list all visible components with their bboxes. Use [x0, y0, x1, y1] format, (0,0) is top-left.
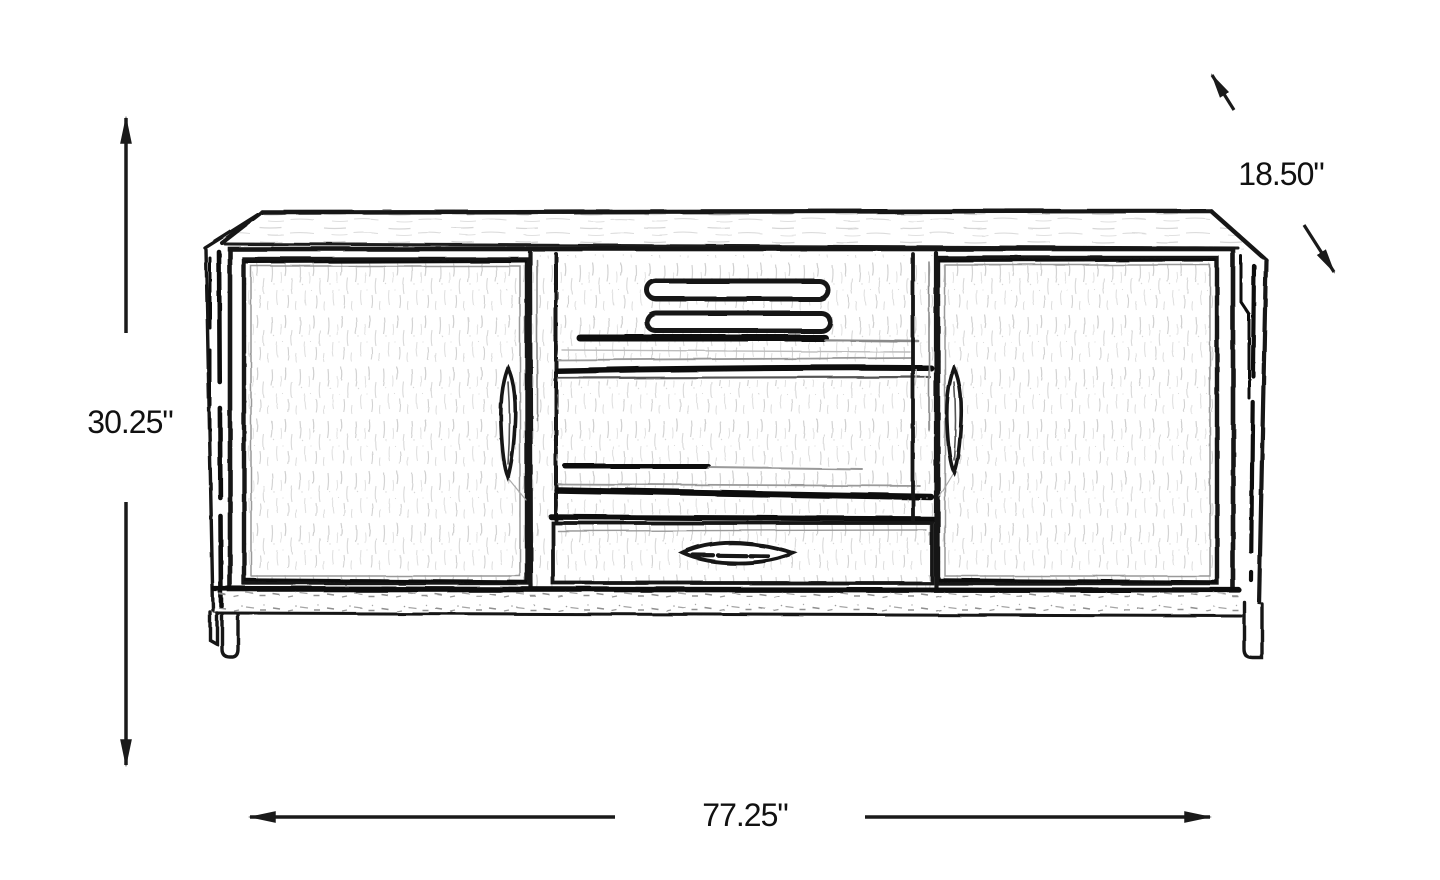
dimension-diagram-canvas: 30.25" 77.25" 18.50"	[0, 0, 1440, 880]
left-side-leg	[210, 612, 217, 644]
depth-dimension-label: 18.50"	[1196, 157, 1366, 191]
vent-slot-1	[647, 281, 828, 299]
cabinet-sketch-group	[205, 211, 1266, 658]
right-door	[938, 258, 1217, 583]
height-dimension-label: 30.25"	[45, 405, 215, 439]
center-vent-panel	[557, 255, 918, 367]
left-door	[244, 259, 527, 583]
left-front-leg	[222, 615, 238, 657]
right-leg	[1244, 602, 1262, 658]
cabinet-line-drawing	[0, 0, 1440, 880]
vent-slot-2	[647, 313, 830, 331]
bottom-rail	[214, 589, 1241, 616]
center-drawer	[553, 523, 932, 583]
width-dimension-label: 77.25"	[660, 798, 830, 832]
cabinet-right-side	[1233, 250, 1266, 608]
center-open-shelf-panel	[557, 380, 913, 488]
